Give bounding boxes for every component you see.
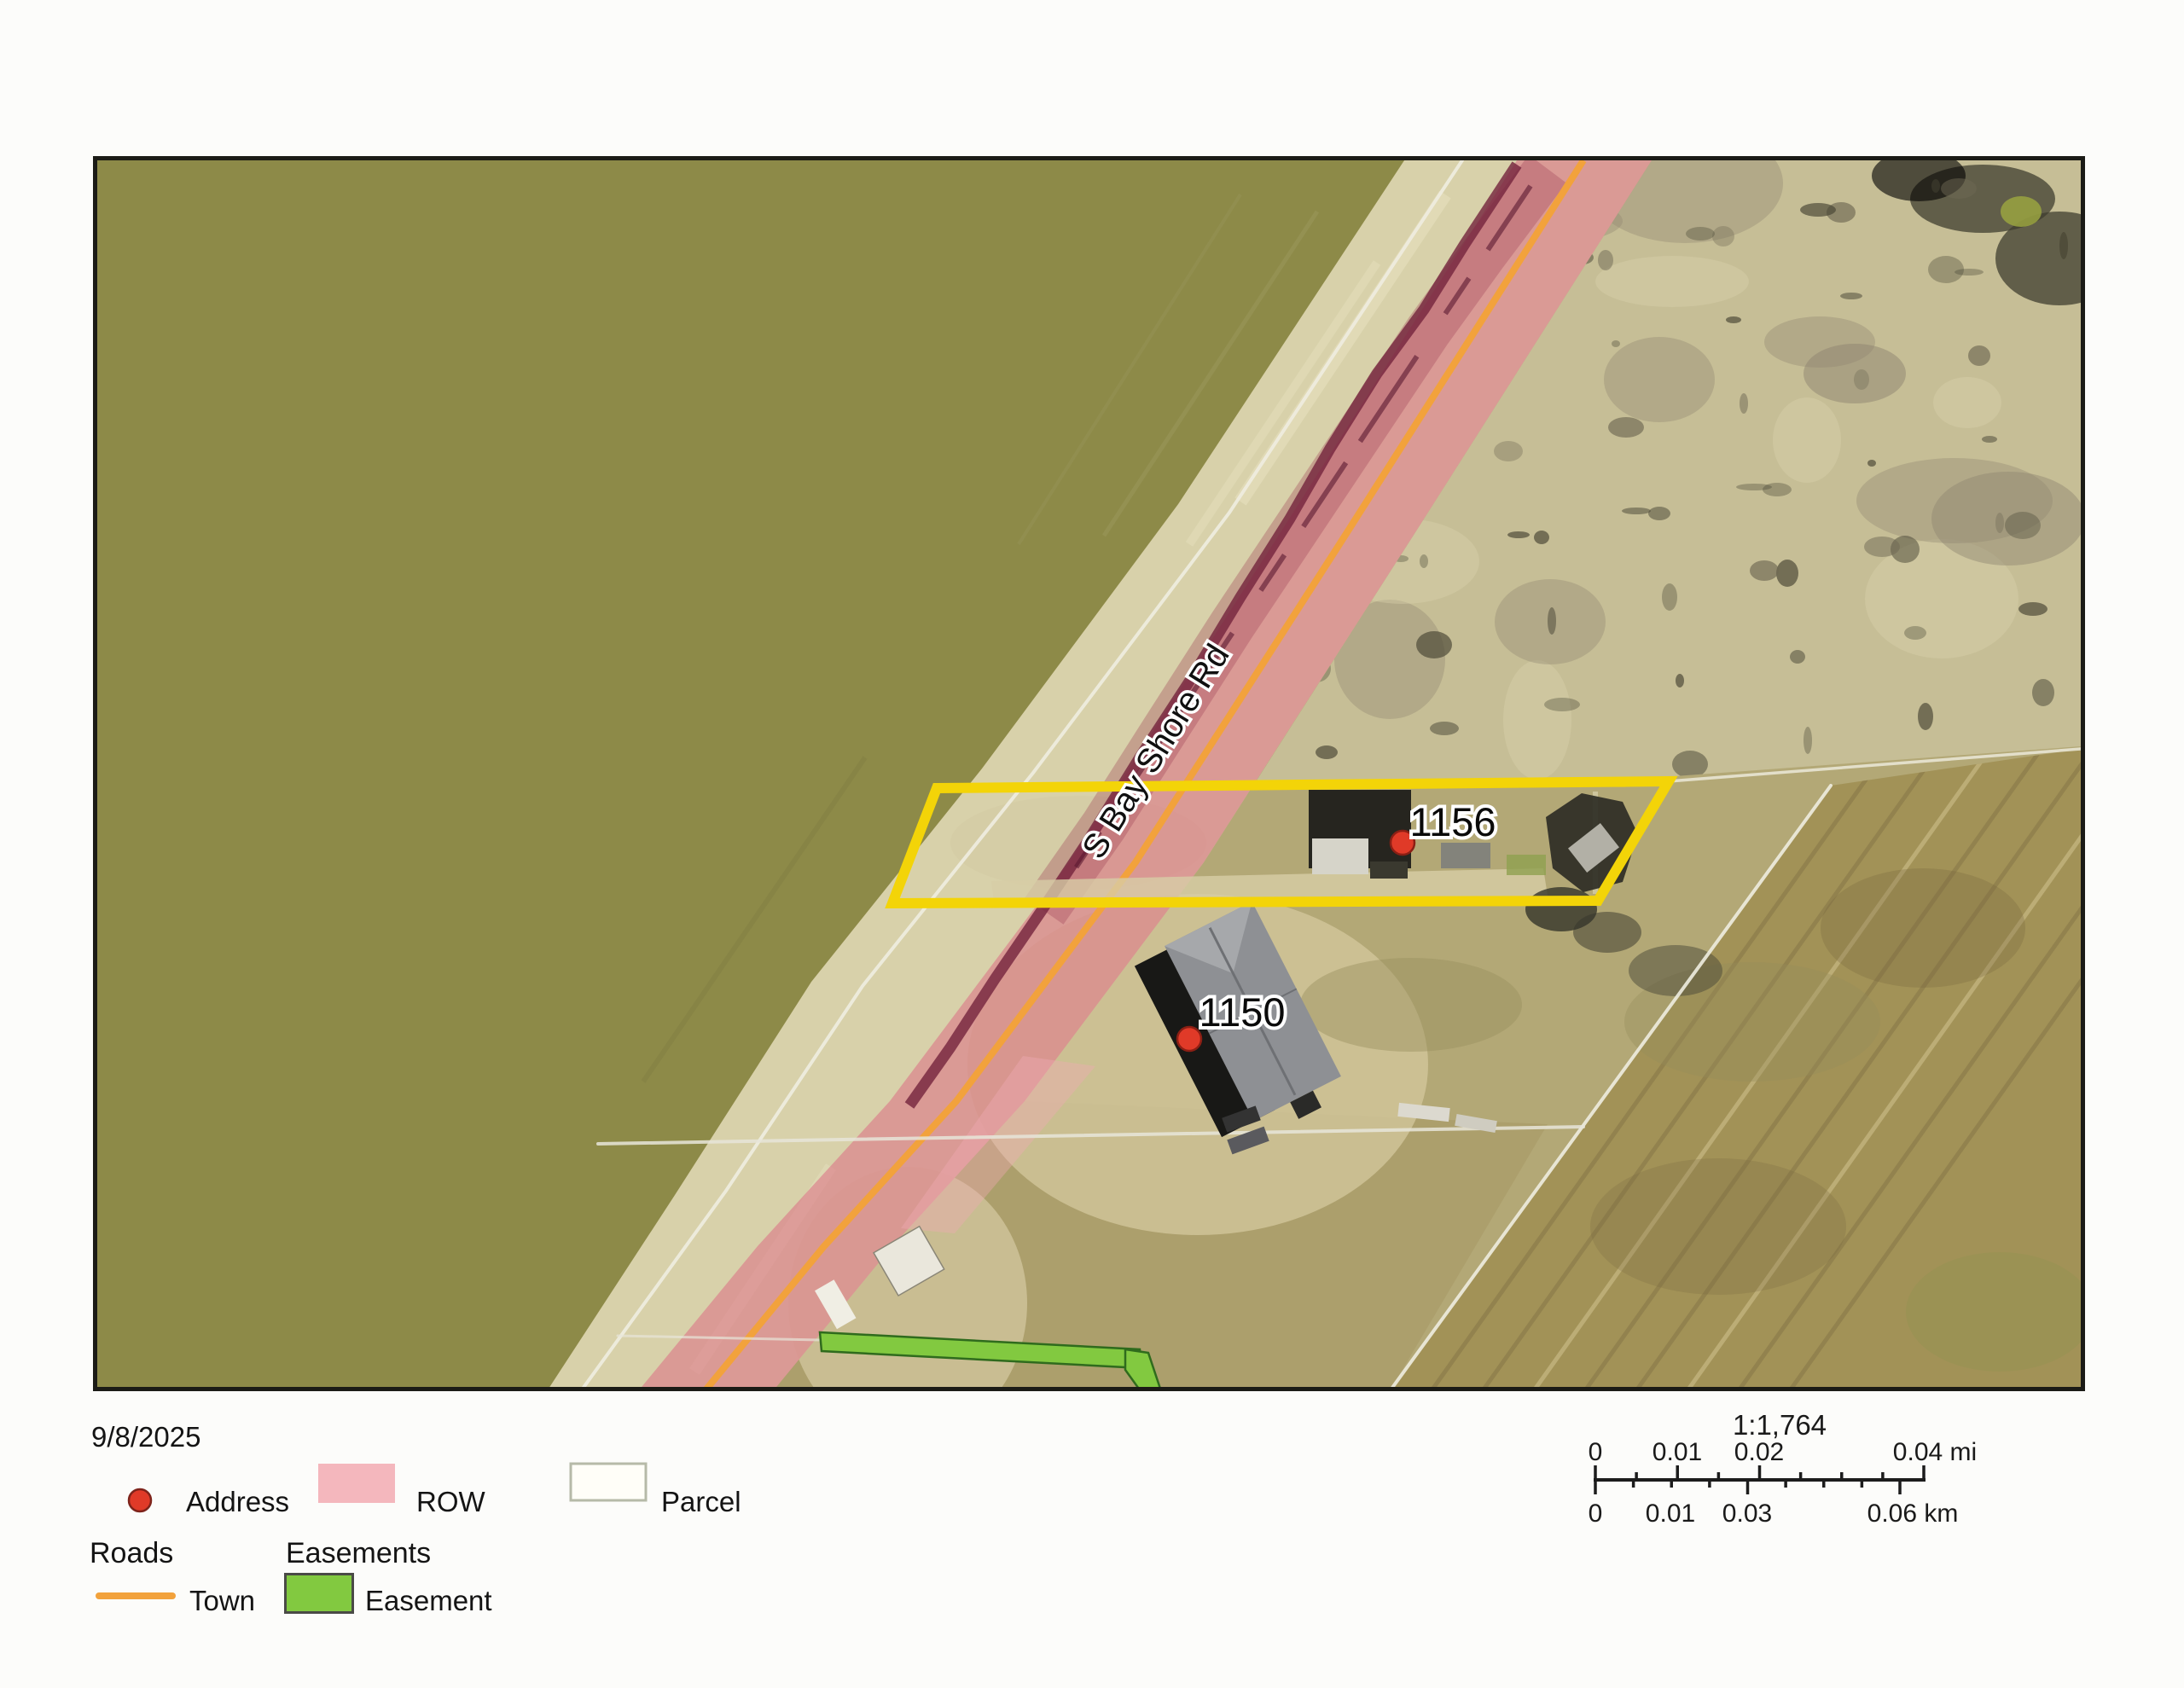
legend-parcel-label: Parcel	[661, 1486, 741, 1518]
mi-tick-label: 0.04 mi	[1893, 1438, 1977, 1466]
km-tick-label: 0.06 km	[1867, 1499, 1959, 1528]
easement-legend-swatch	[284, 1573, 354, 1614]
legend-address-label: Address	[186, 1486, 289, 1518]
mi-tick-label: 0.02	[1734, 1438, 1784, 1466]
legend-row-label: ROW	[416, 1486, 485, 1518]
map-frame: S Bay Shore Rd 1156 1150	[93, 156, 2085, 1391]
address-point-1150	[1177, 1027, 1201, 1051]
address-legend-icon	[126, 1487, 154, 1514]
mi-tick-label: 0.01	[1653, 1438, 1702, 1466]
mi-tick-label: 0	[1589, 1438, 1603, 1466]
legend-roads-header: Roads	[90, 1537, 173, 1570]
scale-ratio: 1:1,764	[1733, 1409, 1827, 1441]
legend-town-label: Town	[189, 1585, 255, 1617]
km-tick-label: 0.03	[1722, 1499, 1772, 1528]
map-date: 9/8/2025	[91, 1421, 200, 1453]
scanned-gis-map-page: S Bay Shore Rd 1156 1150 9/8/2025 Addres…	[0, 0, 2184, 1688]
lawn-strip	[1507, 855, 1546, 875]
row-legend-swatch	[318, 1464, 395, 1503]
building-part	[1441, 843, 1490, 868]
km-tick-label: 0	[1589, 1499, 1603, 1528]
scale-mi-labels: 0 0.01 0.02 0.04 mi	[1589, 1438, 1978, 1466]
scale-km-labels: 0 0.01 0.03 0.06 km	[1589, 1499, 1959, 1528]
town-road-legend-swatch	[96, 1592, 176, 1600]
building-court	[1312, 838, 1368, 874]
tree	[1525, 887, 1597, 931]
address-label-1150: 1150	[1199, 989, 1285, 1035]
building-part	[1370, 861, 1408, 879]
aerial-map: S Bay Shore Rd 1156 1150	[97, 160, 2081, 1387]
scale-bar: 1:1,764 0 0.01 0.02 0.04 mi 0 0.01 0.03 …	[1578, 1407, 2005, 1535]
lawn-patch	[1300, 958, 1522, 1052]
legend-easement-label: Easement	[365, 1585, 492, 1617]
parcel-legend-swatch	[569, 1462, 648, 1502]
km-tick-label: 0.01	[1646, 1499, 1695, 1528]
legend-easements-header: Easements	[286, 1537, 431, 1570]
address-label-1156: 1156	[1409, 799, 1496, 844]
